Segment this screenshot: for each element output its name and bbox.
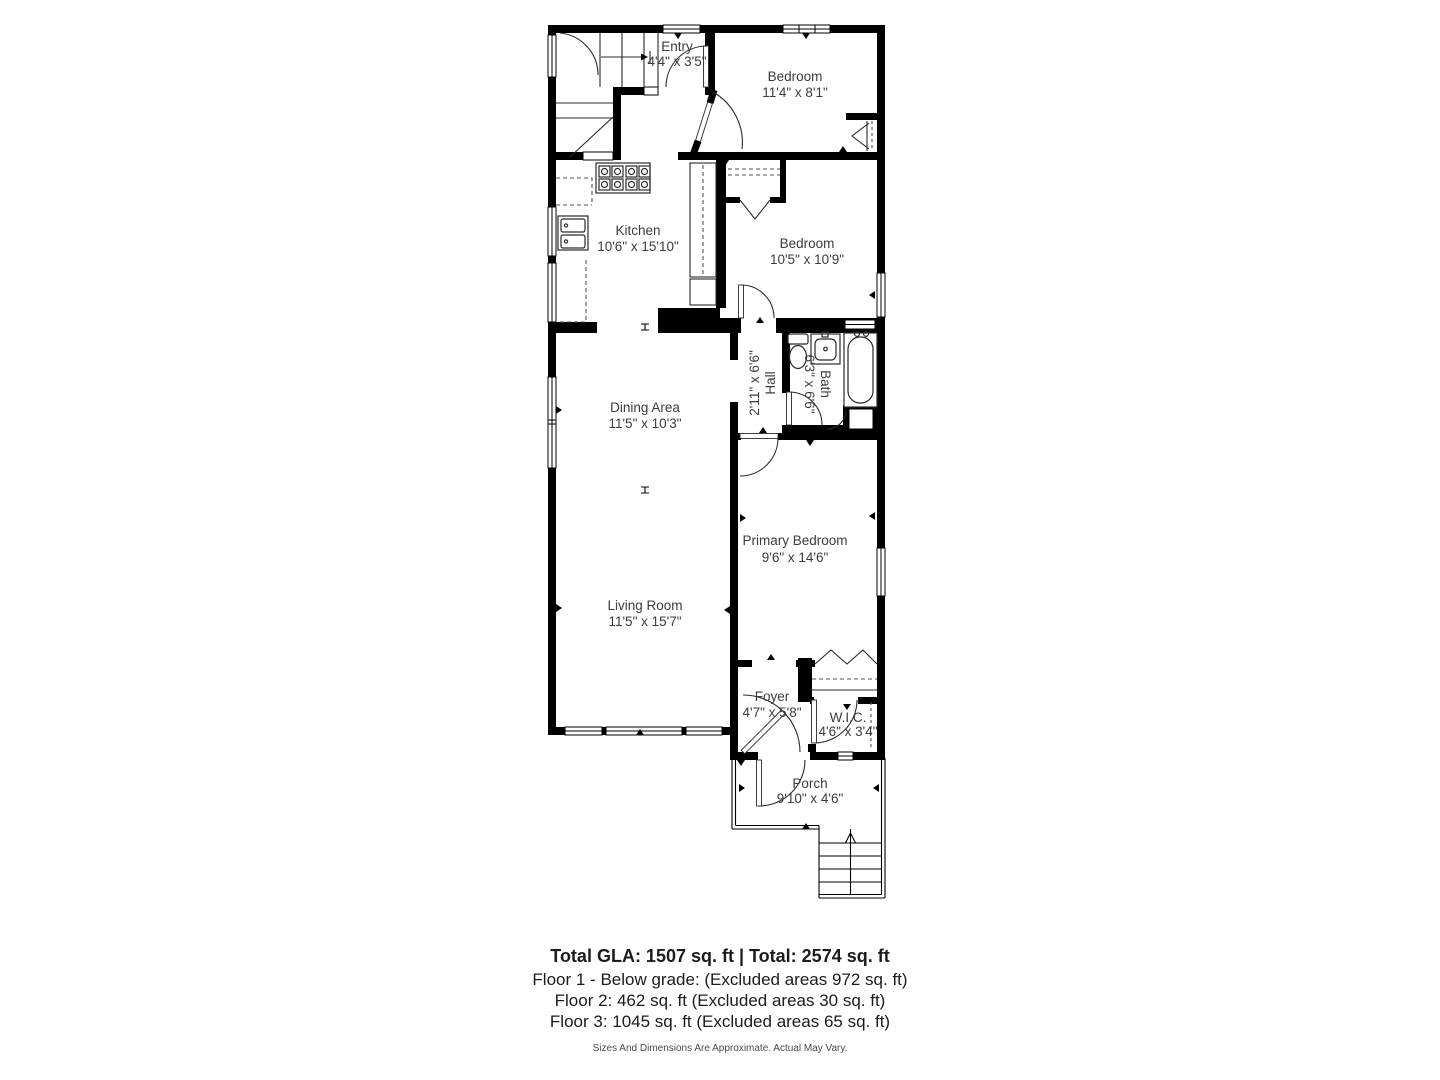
window — [606, 727, 682, 735]
walls — [548, 25, 885, 760]
floor3-line: Floor 3: 1045 sq. ft (Excluded areas 65 … — [0, 1012, 1440, 1032]
stairs-porch — [819, 826, 885, 899]
room-dims-foyer: 4'7" x 5'8" — [742, 705, 801, 720]
window — [686, 727, 722, 735]
window — [783, 25, 830, 33]
room-label-bedroom-mid: Bedroom — [780, 236, 835, 251]
door-arc — [739, 285, 775, 318]
room-label-foyer: Foyer — [755, 689, 790, 704]
window — [663, 25, 700, 33]
pantry-cabinet — [690, 163, 716, 305]
room-dims-primary: 9'6" x 14'6" — [762, 550, 829, 565]
room-dims-bedroom-mid: 10'5" x 10'9" — [770, 252, 844, 267]
room-dims-entry: 4'4" x 3'5" — [647, 54, 706, 69]
room-dims-bedroom-top: 11'4" x 8'1" — [762, 85, 828, 100]
floorplan-drawing: Entry 4'4" x 3'5" Bedroom 11'4" x 8'1" K… — [0, 0, 1440, 1080]
room-dims-kitchen: 10'6" x 15'10" — [597, 239, 679, 254]
room-dims-bath: 6'3" x 6'6" — [802, 354, 817, 413]
door-arc — [740, 434, 778, 477]
room-label-porch: Porch — [792, 776, 827, 791]
windows — [548, 25, 885, 760]
total-gla-line: Total GLA: 1507 sq. ft | Total: 2574 sq.… — [0, 946, 1440, 967]
window — [548, 35, 556, 77]
room-dims-hall: 2'11" x 6'6" — [747, 350, 762, 416]
window — [565, 727, 602, 735]
room-dims-dining: 11'5" x 10'3" — [608, 416, 681, 431]
window — [548, 377, 556, 468]
room-dims-living: 11'5" x 15'7" — [608, 614, 681, 629]
room-label-primary: Primary Bedroom — [742, 533, 847, 548]
bathtub — [844, 332, 877, 407]
room-label-kitchen: Kitchen — [615, 223, 660, 238]
room-label-wic: W.I.C. — [830, 710, 867, 725]
closet-rod — [728, 169, 780, 175]
door-threshold — [583, 152, 613, 160]
linen-closet — [849, 409, 873, 429]
window-threshold — [838, 752, 853, 760]
door-arc — [693, 90, 742, 155]
room-label-dining: Dining Area — [610, 400, 680, 415]
window — [877, 548, 885, 596]
disclaimer-text: Sizes And Dimensions Are Approximate. Ac… — [0, 1043, 1440, 1054]
window — [548, 263, 556, 322]
kitchen-sink — [558, 216, 588, 250]
window — [845, 320, 875, 329]
room-label-hall: Hall — [763, 371, 778, 394]
room-label-bedroom-top: Bedroom — [768, 69, 823, 84]
room-dims-porch: 9'10" x 4'6" — [777, 791, 844, 806]
window — [877, 273, 885, 317]
room-label-entry: Entry — [661, 39, 693, 54]
room-label-bath: Bath — [818, 370, 833, 398]
floor2-line: Floor 2: 462 sq. ft (Excluded areas 30 s… — [0, 991, 1440, 1011]
window — [548, 207, 556, 256]
floor1-line: Floor 1 - Below grade: (Excluded areas 9… — [0, 970, 1440, 990]
room-label-living: Living Room — [607, 598, 682, 613]
bifold-door — [815, 650, 877, 664]
door-threshold — [644, 87, 658, 95]
room-dims-wic: 4'6" x 3'4" — [818, 724, 877, 739]
door-arc — [560, 33, 598, 75]
stove — [596, 163, 650, 193]
bifold-door — [740, 200, 770, 219]
floorplan-page: Entry 4'4" x 3'5" Bedroom 11'4" x 8'1" K… — [0, 0, 1440, 1080]
